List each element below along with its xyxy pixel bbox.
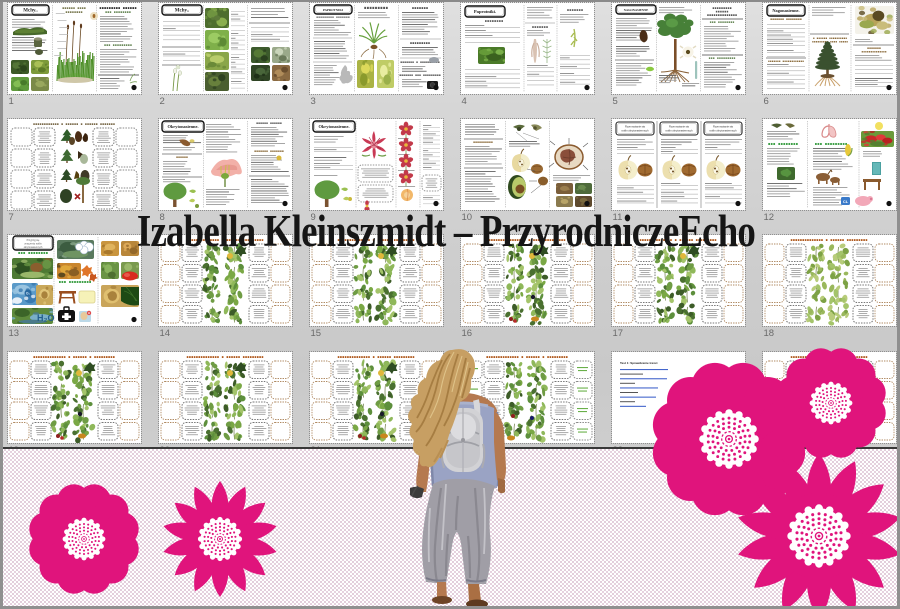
svg-text:H₂O: H₂O — [37, 313, 55, 323]
svg-text:Mchy..: Mchy.. — [174, 9, 189, 14]
svg-text:Paprotniki.: Paprotniki. — [473, 9, 495, 14]
svg-text:Nagonasienne.: Nagonasienne. — [772, 8, 799, 13]
svg-text:CL: CL — [842, 199, 848, 204]
svg-text:PAPROTNIKI: PAPROTNIKI — [322, 8, 343, 12]
svg-text:Test 1: Sprawdzenie treści: Test 1: Sprawdzenie treści — [620, 361, 658, 365]
svg-text:Rozmnażanie się: Rozmnażanie się — [669, 125, 689, 129]
svg-text:roślin okrytonasiennych: roślin okrytonasiennych — [621, 129, 649, 133]
svg-text:NAGONASIENNE: NAGONASIENNE — [623, 8, 648, 12]
svg-text:Okrytonasienne.: Okrytonasienne. — [318, 124, 349, 129]
svg-text:roślin okrytonasiennych: roślin okrytonasiennych — [665, 129, 693, 133]
svg-text:Mchy..: Mchy.. — [23, 9, 38, 14]
svg-text:O₂: O₂ — [25, 292, 30, 296]
svg-text:okrytonasiennych: okrytonasiennych — [23, 246, 42, 249]
svg-text:Rozmnażanie się: Rozmnażanie się — [713, 125, 733, 129]
svg-text:Okrytonasienne.: Okrytonasienne. — [167, 124, 198, 129]
svg-text:Rozmnażanie się: Rozmnażanie się — [625, 125, 645, 129]
svg-text:roślin okrytonasiennych: roślin okrytonasiennych — [709, 129, 737, 133]
